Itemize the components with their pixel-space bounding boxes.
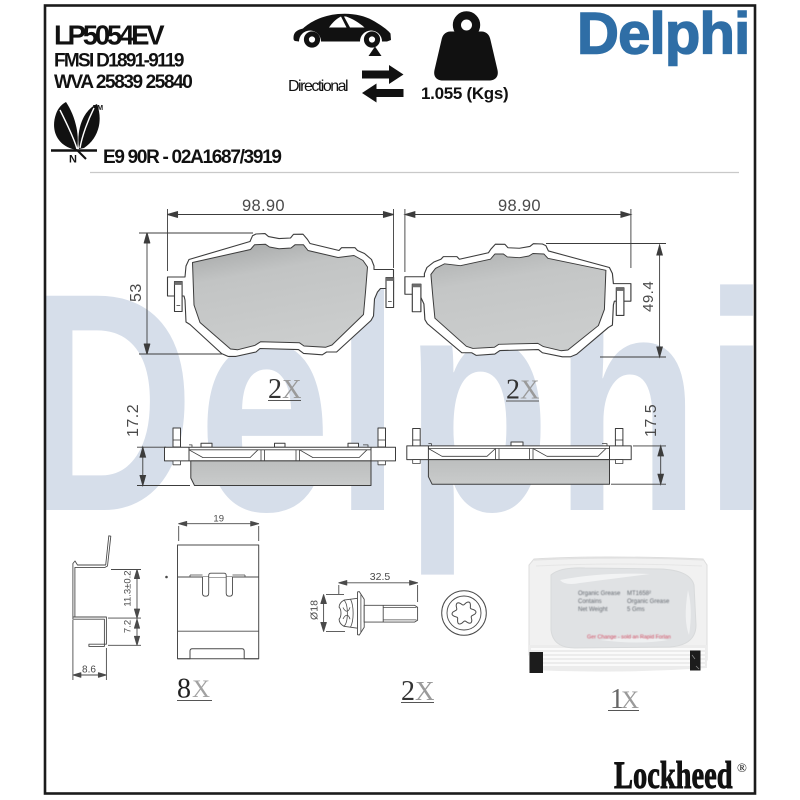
svg-text:Contains: Contains bbox=[578, 599, 602, 605]
svg-text:LP5054EV: LP5054EV bbox=[54, 20, 165, 51]
svg-text:11.3±0.2: 11.3±0.2 bbox=[123, 570, 134, 606]
svg-text:X: X bbox=[621, 687, 639, 714]
svg-text:98.90: 98.90 bbox=[498, 197, 541, 215]
svg-text:5 Gms: 5 Gms bbox=[627, 607, 645, 613]
svg-text:Delphi: Delphi bbox=[577, 2, 749, 67]
svg-text:17.2: 17.2 bbox=[125, 404, 142, 437]
svg-text:17.5: 17.5 bbox=[643, 404, 660, 437]
svg-text:X: X bbox=[282, 374, 302, 404]
svg-text:19: 19 bbox=[213, 514, 224, 525]
svg-text:E9 90R - 02A1687/3919: E9 90R - 02A1687/3919 bbox=[103, 147, 281, 168]
svg-text:Lockheed: Lockheed bbox=[614, 755, 733, 797]
svg-text:Directional: Directional bbox=[288, 78, 348, 95]
svg-text:®: ® bbox=[737, 760, 747, 775]
svg-text:Ø18: Ø18 bbox=[309, 600, 321, 620]
svg-text:N: N bbox=[69, 154, 77, 166]
svg-text:Ger Change - sold an Rapid For: Ger Change - sold an Rapid Forlan bbox=[587, 635, 671, 641]
svg-text:Net Weight: Net Weight bbox=[578, 607, 608, 613]
svg-text:49.4: 49.4 bbox=[640, 281, 657, 312]
svg-text:X: X bbox=[520, 375, 540, 405]
svg-text:WVA 25839 25840: WVA 25839 25840 bbox=[54, 72, 192, 93]
svg-text:8.6: 8.6 bbox=[82, 665, 96, 676]
svg-text:Organic Grease: Organic Grease bbox=[578, 591, 621, 597]
svg-text:Delphi: Delphi bbox=[22, 228, 773, 578]
svg-text:32.5: 32.5 bbox=[370, 571, 391, 583]
svg-text:FMSI D1891-9119: FMSI D1891-9119 bbox=[54, 51, 184, 72]
svg-text:98.90: 98.90 bbox=[242, 197, 285, 215]
svg-text:X: X bbox=[192, 676, 210, 703]
svg-text:MT1658²: MT1658² bbox=[627, 591, 651, 597]
svg-text:Organic Grease: Organic Grease bbox=[627, 599, 670, 605]
svg-text:TM: TM bbox=[93, 105, 103, 112]
svg-text:7.2: 7.2 bbox=[123, 620, 134, 633]
svg-text:X: X bbox=[415, 676, 435, 706]
svg-text:8: 8 bbox=[177, 674, 191, 705]
svg-text:1.055 (Kgs): 1.055 (Kgs) bbox=[421, 84, 508, 103]
svg-text:53: 53 bbox=[128, 283, 145, 302]
